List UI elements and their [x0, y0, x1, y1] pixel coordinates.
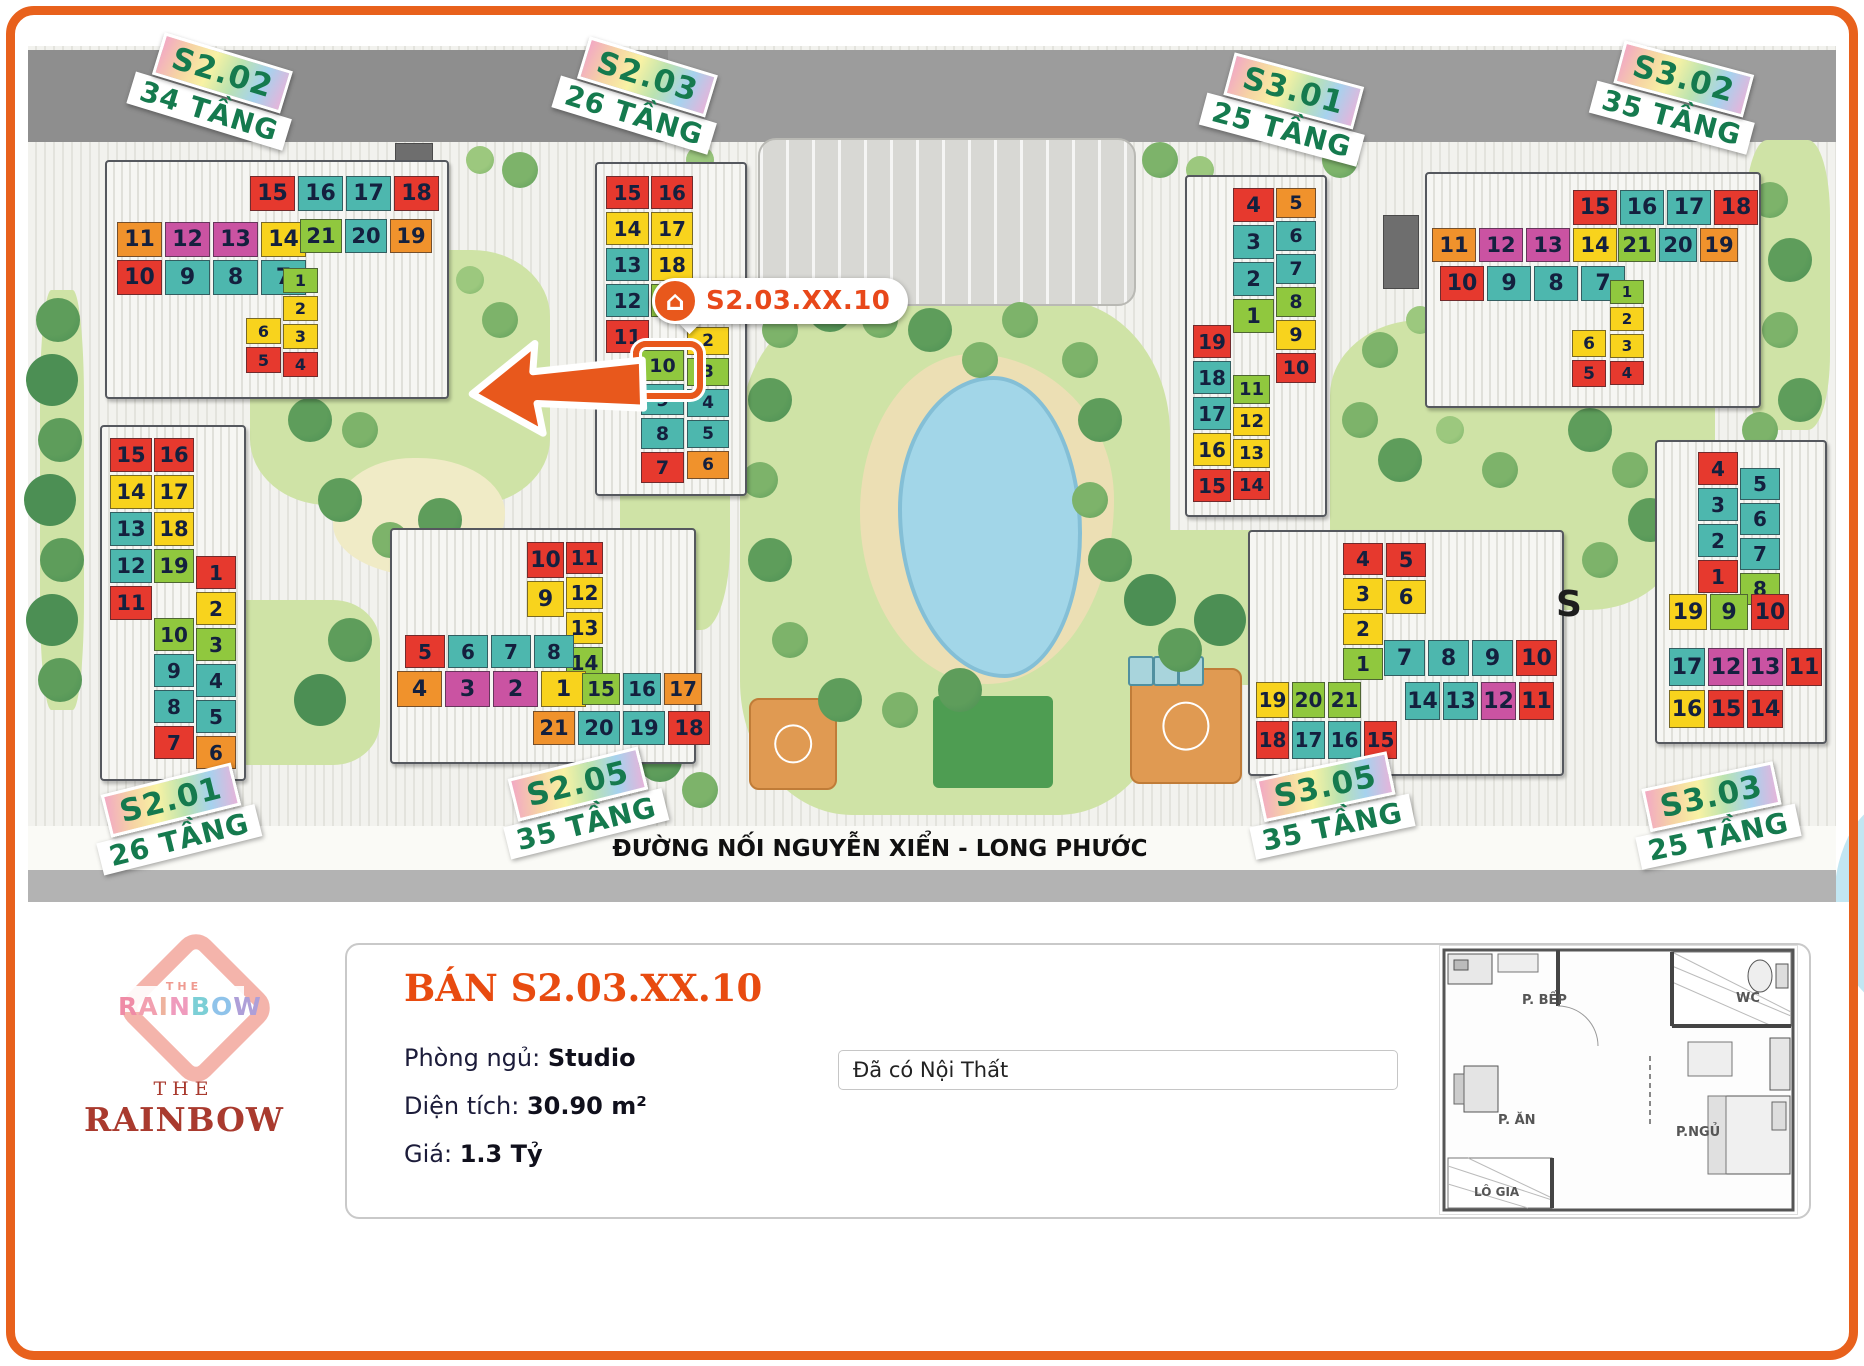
unit-S3.02-2[interactable]: 2 — [1610, 307, 1644, 331]
floorplan-wc-label: WC — [1736, 991, 1760, 1006]
unit-S3.01-17[interactable]: 17 — [1193, 397, 1231, 430]
unit-S2.05-2[interactable]: 2 — [493, 671, 538, 707]
unit-S2.01-18[interactable]: 18 — [154, 512, 194, 546]
unit-S3.02-19[interactable]: 19 — [1700, 228, 1738, 262]
tree — [328, 618, 372, 662]
unit-S2.02-18[interactable]: 18 — [394, 176, 439, 211]
unit-S2.03-14[interactable]: 14 — [606, 212, 649, 245]
tree — [1778, 378, 1822, 422]
unit-S2.01-3[interactable]: 3 — [196, 628, 236, 661]
unit-S2.01-10[interactable]: 10 — [154, 618, 194, 651]
unit-S2.01-17[interactable]: 17 — [154, 475, 194, 509]
tree — [36, 298, 80, 342]
unit-S2.05-11[interactable]: 11 — [566, 542, 603, 574]
tree — [1612, 452, 1648, 488]
unit-S3.03-10[interactable]: 10 — [1751, 594, 1789, 630]
tree — [1124, 574, 1176, 626]
tree — [1768, 238, 1812, 282]
unit-S2.01-9[interactable]: 9 — [154, 654, 194, 687]
unit-S3.05-17[interactable]: 17 — [1292, 721, 1325, 759]
tree — [318, 478, 362, 522]
unit-S2.02-20[interactable]: 20 — [345, 219, 387, 253]
tree — [342, 412, 378, 448]
floorplan-balcony-label: LÔ GIA — [1474, 1184, 1520, 1199]
floorplan-dining-label: P. ĂN — [1498, 1112, 1536, 1128]
unit-S2.01-14[interactable]: 14 — [110, 475, 152, 509]
tree — [818, 678, 862, 722]
tree — [908, 308, 952, 352]
cabana — [1128, 656, 1154, 686]
unit-S3.05-14[interactable]: 14 — [1405, 682, 1440, 720]
unit-S2.02-1[interactable]: 1 — [283, 268, 318, 293]
unit-S3.05-16[interactable]: 16 — [1328, 721, 1361, 759]
unit-S2.05-5[interactable]: 5 — [405, 635, 445, 668]
unit-S3.01-13[interactable]: 13 — [1233, 439, 1270, 468]
unit-S2.01-12[interactable]: 12 — [110, 549, 152, 583]
tree — [288, 398, 332, 442]
unit-S3.01-4[interactable]: 4 — [1233, 188, 1274, 222]
tree — [24, 474, 76, 526]
tree — [772, 622, 808, 658]
tree — [38, 418, 82, 462]
unit-S2.02-2[interactable]: 2 — [283, 296, 318, 321]
unit-S2.03-18[interactable]: 18 — [651, 248, 693, 281]
floorplan-bedroom-label: P.NGỦ — [1676, 1123, 1720, 1140]
unit-S3.05-3[interactable]: 3 — [1343, 578, 1383, 610]
tree — [38, 658, 82, 702]
unit-S2.03-12[interactable]: 12 — [606, 284, 649, 317]
unit-S3.02-12[interactable]: 12 — [1479, 228, 1523, 262]
unit-S2.02-11[interactable]: 11 — [117, 222, 162, 257]
unit-S3.02-13[interactable]: 13 — [1526, 228, 1570, 262]
unit-S3.05-9[interactable]: 9 — [1472, 640, 1513, 676]
unit-S3.01-15[interactable]: 15 — [1193, 469, 1231, 502]
stray-letter: S — [1556, 584, 1582, 625]
unit-S3.01-7[interactable]: 7 — [1276, 254, 1316, 284]
tree — [742, 462, 778, 498]
sidewalk — [28, 870, 1836, 902]
unit-S3.02-9[interactable]: 9 — [1487, 266, 1531, 301]
unit-S3.02-15[interactable]: 15 — [1573, 190, 1617, 225]
unit-S2.05-3[interactable]: 3 — [445, 671, 490, 707]
unit-S3.01-2[interactable]: 2 — [1233, 262, 1274, 296]
tree — [1362, 332, 1398, 368]
unit-S3.01-1[interactable]: 1 — [1233, 299, 1274, 333]
unit-S3.03-2[interactable]: 2 — [1698, 524, 1738, 557]
unit-S3.02-6[interactable]: 6 — [1572, 330, 1606, 357]
tree — [938, 668, 982, 712]
unit-S2.05-19[interactable]: 19 — [623, 711, 665, 745]
unit-S3.03-19[interactable]: 19 — [1669, 594, 1707, 630]
unit-S2.02-9[interactable]: 9 — [165, 260, 210, 295]
tree — [1002, 302, 1038, 338]
unit-S3.03-11[interactable]: 11 — [1786, 648, 1822, 686]
unit-S2.01-19[interactable]: 19 — [154, 549, 194, 583]
unit-S3.03-14[interactable]: 14 — [1747, 690, 1783, 728]
unit-S3.03-16[interactable]: 16 — [1669, 690, 1705, 728]
unit-S2.01-5[interactable]: 5 — [196, 700, 236, 733]
tree — [456, 266, 484, 294]
unit-S2.01-4[interactable]: 4 — [196, 664, 236, 697]
unit-S3.02-1[interactable]: 1 — [1610, 280, 1644, 304]
unit-S3.01-8[interactable]: 8 — [1276, 287, 1316, 317]
apartment-picker-page: 151617181112131421201910987123465S2.0234… — [0, 0, 1864, 1366]
marker-label: S2.03.XX.10 — [706, 286, 890, 316]
unit-S2.02-17[interactable]: 17 — [346, 176, 391, 211]
unit-S2.05-9[interactable]: 9 — [527, 581, 564, 617]
price-field: Giá: 1.3 Tỷ — [404, 1140, 543, 1168]
unit-S2.02-19[interactable]: 19 — [390, 219, 432, 253]
unit-S3.03-13[interactable]: 13 — [1747, 648, 1783, 686]
unit-S3.05-19[interactable]: 19 — [1256, 682, 1289, 718]
logo-rainbow-text: RAINBOW — [71, 1100, 297, 1139]
unit-S3.01-12[interactable]: 12 — [1233, 407, 1270, 436]
unit-S3.01-3[interactable]: 3 — [1233, 225, 1274, 259]
tree — [748, 538, 792, 582]
unit-S2.02-3[interactable]: 3 — [283, 324, 318, 349]
unit-S2.05-7[interactable]: 7 — [491, 635, 531, 668]
unit-S3.02-3[interactable]: 3 — [1610, 334, 1644, 358]
tree — [1582, 542, 1618, 578]
unit-S2.01-7[interactable]: 7 — [154, 726, 194, 759]
unit-S2.02-12[interactable]: 12 — [165, 222, 210, 257]
tree — [466, 146, 494, 174]
unit-S3.02-17[interactable]: 17 — [1667, 190, 1711, 225]
unit-S3.03-12[interactable]: 12 — [1708, 648, 1744, 686]
unit-S2.05-8[interactable]: 8 — [534, 635, 574, 668]
unit-S3.02-4[interactable]: 4 — [1610, 361, 1644, 385]
unit-S2.03-7[interactable]: 7 — [641, 452, 684, 483]
unit-S2.01-13[interactable]: 13 — [110, 512, 152, 546]
unit-S3.03-3[interactable]: 3 — [1698, 488, 1738, 521]
unit-S3.03-5[interactable]: 5 — [1740, 468, 1780, 500]
unit-S3.01-6[interactable]: 6 — [1276, 221, 1316, 251]
unit-S3.05-8[interactable]: 8 — [1428, 640, 1469, 676]
unit-S3.05-1[interactable]: 1 — [1343, 648, 1383, 680]
unit-S3.03-6[interactable]: 6 — [1740, 503, 1780, 535]
tree — [882, 692, 918, 728]
floorplan-thumbnail: P. BẾP WC P. ĂN P.NGỦ LÔ GIA — [1439, 945, 1798, 1215]
unit-S2.03-15[interactable]: 15 — [606, 176, 649, 209]
tree — [502, 152, 538, 188]
unit-S3.01-11[interactable]: 11 — [1233, 375, 1270, 404]
unit-S3.03-4[interactable]: 4 — [1698, 452, 1738, 485]
utility-shed — [1383, 215, 1419, 289]
unit-S2.05-1[interactable]: 1 — [541, 671, 586, 707]
unit-S2.01-1[interactable]: 1 — [196, 556, 236, 589]
unit-S3.02-10[interactable]: 10 — [1440, 266, 1484, 301]
tree — [1378, 438, 1422, 482]
unit-S3.01-9[interactable]: 9 — [1276, 320, 1316, 350]
unit-S3.05-12[interactable]: 12 — [1481, 682, 1516, 720]
unit-S3.03-1[interactable]: 1 — [1698, 560, 1738, 593]
unit-S3.05-10[interactable]: 10 — [1516, 640, 1557, 676]
logo-the-text: THE — [71, 1078, 297, 1100]
tree — [1342, 402, 1378, 438]
tree — [1194, 594, 1246, 646]
tree — [962, 342, 998, 378]
pointer-arrow-icon — [465, 330, 652, 446]
unit-S2.05-4[interactable]: 4 — [397, 671, 442, 707]
unit-S2.01-11[interactable]: 11 — [110, 586, 152, 620]
unit-S2.02-6[interactable]: 6 — [246, 318, 281, 344]
tree — [1072, 482, 1108, 518]
tree — [1142, 142, 1178, 178]
unit-S2.05-6[interactable]: 6 — [448, 635, 488, 668]
furnishing-input[interactable] — [838, 1050, 1398, 1090]
unit-S2.02-10[interactable]: 10 — [117, 260, 162, 295]
unit-S2.01-2[interactable]: 2 — [196, 592, 236, 625]
unit-S2.03-6[interactable]: 6 — [687, 451, 729, 479]
unit-S2.02-16[interactable]: 16 — [298, 176, 343, 211]
unit-S3.05-11[interactable]: 11 — [1519, 682, 1554, 720]
tree — [1158, 628, 1202, 672]
tree — [26, 594, 78, 646]
unit-S2.03-5[interactable]: 5 — [687, 420, 729, 448]
tree — [1568, 408, 1612, 452]
unit-S3.02-5[interactable]: 5 — [1572, 360, 1606, 387]
unit-S3.01-18[interactable]: 18 — [1193, 361, 1231, 394]
unit-S3.05-21[interactable]: 21 — [1328, 682, 1361, 718]
unit-S2.01-8[interactable]: 8 — [154, 690, 194, 723]
unit-S2.05-15[interactable]: 15 — [582, 673, 620, 705]
unit-S3.05-13[interactable]: 13 — [1443, 682, 1478, 720]
unit-S2.05-12[interactable]: 12 — [566, 577, 603, 609]
unit-S2.01-16[interactable]: 16 — [154, 438, 194, 472]
tree — [1762, 312, 1798, 348]
unit-S3.02-11[interactable]: 11 — [1432, 228, 1476, 262]
tree — [1482, 452, 1518, 488]
rainbow-logo-icon: THE RAINBOW — [118, 942, 250, 1062]
tree — [1088, 538, 1132, 582]
unit-S2.02-13[interactable]: 13 — [213, 222, 258, 257]
unit-S3.03-9[interactable]: 9 — [1710, 594, 1748, 630]
unit-title: BÁN S2.03.XX.10 — [404, 966, 762, 1010]
unit-S3.02-20[interactable]: 20 — [1659, 228, 1697, 262]
home-icon: ⌂ — [653, 279, 697, 323]
unit-S2.02-8[interactable]: 8 — [213, 260, 258, 295]
unit-S2.03-16[interactable]: 16 — [651, 176, 693, 209]
tree — [1078, 398, 1122, 442]
unit-S3.03-7[interactable]: 7 — [1740, 538, 1780, 570]
unit-S2.05-10[interactable]: 10 — [527, 542, 564, 578]
unit-S2.03-17[interactable]: 17 — [651, 212, 693, 245]
road-label: ĐƯỜNG NỐI NGUYỄN XIỂN - LONG PHƯỚC — [600, 832, 1160, 866]
bedrooms-field: Phòng ngủ: Studio — [404, 1044, 636, 1072]
unit-S3.05-7[interactable]: 7 — [1384, 640, 1425, 676]
unit-S2.05-18[interactable]: 18 — [668, 711, 710, 745]
unit-S2.02-4[interactable]: 4 — [283, 352, 318, 377]
unit-S3.02-18[interactable]: 18 — [1714, 190, 1758, 225]
unit-S3.03-17[interactable]: 17 — [1669, 648, 1705, 686]
unit-S3.01-19[interactable]: 19 — [1193, 325, 1231, 358]
tree — [682, 772, 718, 808]
unit-S2.03-13[interactable]: 13 — [606, 248, 649, 281]
unit-S2.02-5[interactable]: 5 — [246, 347, 281, 373]
tree — [26, 354, 78, 406]
unit-S3.05-18[interactable]: 18 — [1256, 721, 1289, 759]
unit-S2.02-21[interactable]: 21 — [300, 219, 342, 253]
unit-S3.01-14[interactable]: 14 — [1233, 471, 1270, 500]
rainbow-logo: THE RAINBOW THE RAINBOW — [71, 938, 297, 1238]
unit-S3.05-4[interactable]: 4 — [1343, 543, 1383, 575]
floorplan-kitchen-label: P. BẾP — [1522, 991, 1567, 1008]
unit-S3.02-14[interactable]: 14 — [1573, 228, 1617, 262]
unit-S2.01-15[interactable]: 15 — [110, 438, 152, 472]
unit-S3.01-10[interactable]: 10 — [1276, 353, 1316, 383]
tree — [748, 378, 792, 422]
unit-S2.05-16[interactable]: 16 — [623, 673, 661, 705]
unit-S3.05-20[interactable]: 20 — [1292, 682, 1325, 718]
unit-S2.05-21[interactable]: 21 — [533, 711, 575, 745]
unit-S3.02-21[interactable]: 21 — [1618, 228, 1656, 262]
unit-S2.05-17[interactable]: 17 — [664, 673, 702, 705]
unit-S2.05-20[interactable]: 20 — [578, 711, 620, 745]
unit-S3.05-5[interactable]: 5 — [1386, 543, 1426, 577]
unit-S3.05-6[interactable]: 6 — [1386, 580, 1426, 614]
unit-S3.05-2[interactable]: 2 — [1343, 613, 1383, 645]
unit-S3.03-15[interactable]: 15 — [1708, 690, 1744, 728]
tree — [294, 674, 346, 726]
tree — [40, 538, 84, 582]
unit-S3.02-16[interactable]: 16 — [1620, 190, 1664, 225]
unit-S3.02-8[interactable]: 8 — [1534, 266, 1578, 301]
tree — [482, 302, 518, 338]
tree — [1436, 416, 1464, 444]
unit-S3.01-16[interactable]: 16 — [1193, 433, 1231, 466]
unit-S3.01-5[interactable]: 5 — [1276, 188, 1316, 218]
tree — [1062, 342, 1098, 378]
area-field: Diện tích: 30.90 m² — [404, 1092, 647, 1120]
unit-marker[interactable]: ⌂ S2.03.XX.10 — [652, 278, 908, 324]
unit-S2.02-15[interactable]: 15 — [250, 176, 295, 211]
